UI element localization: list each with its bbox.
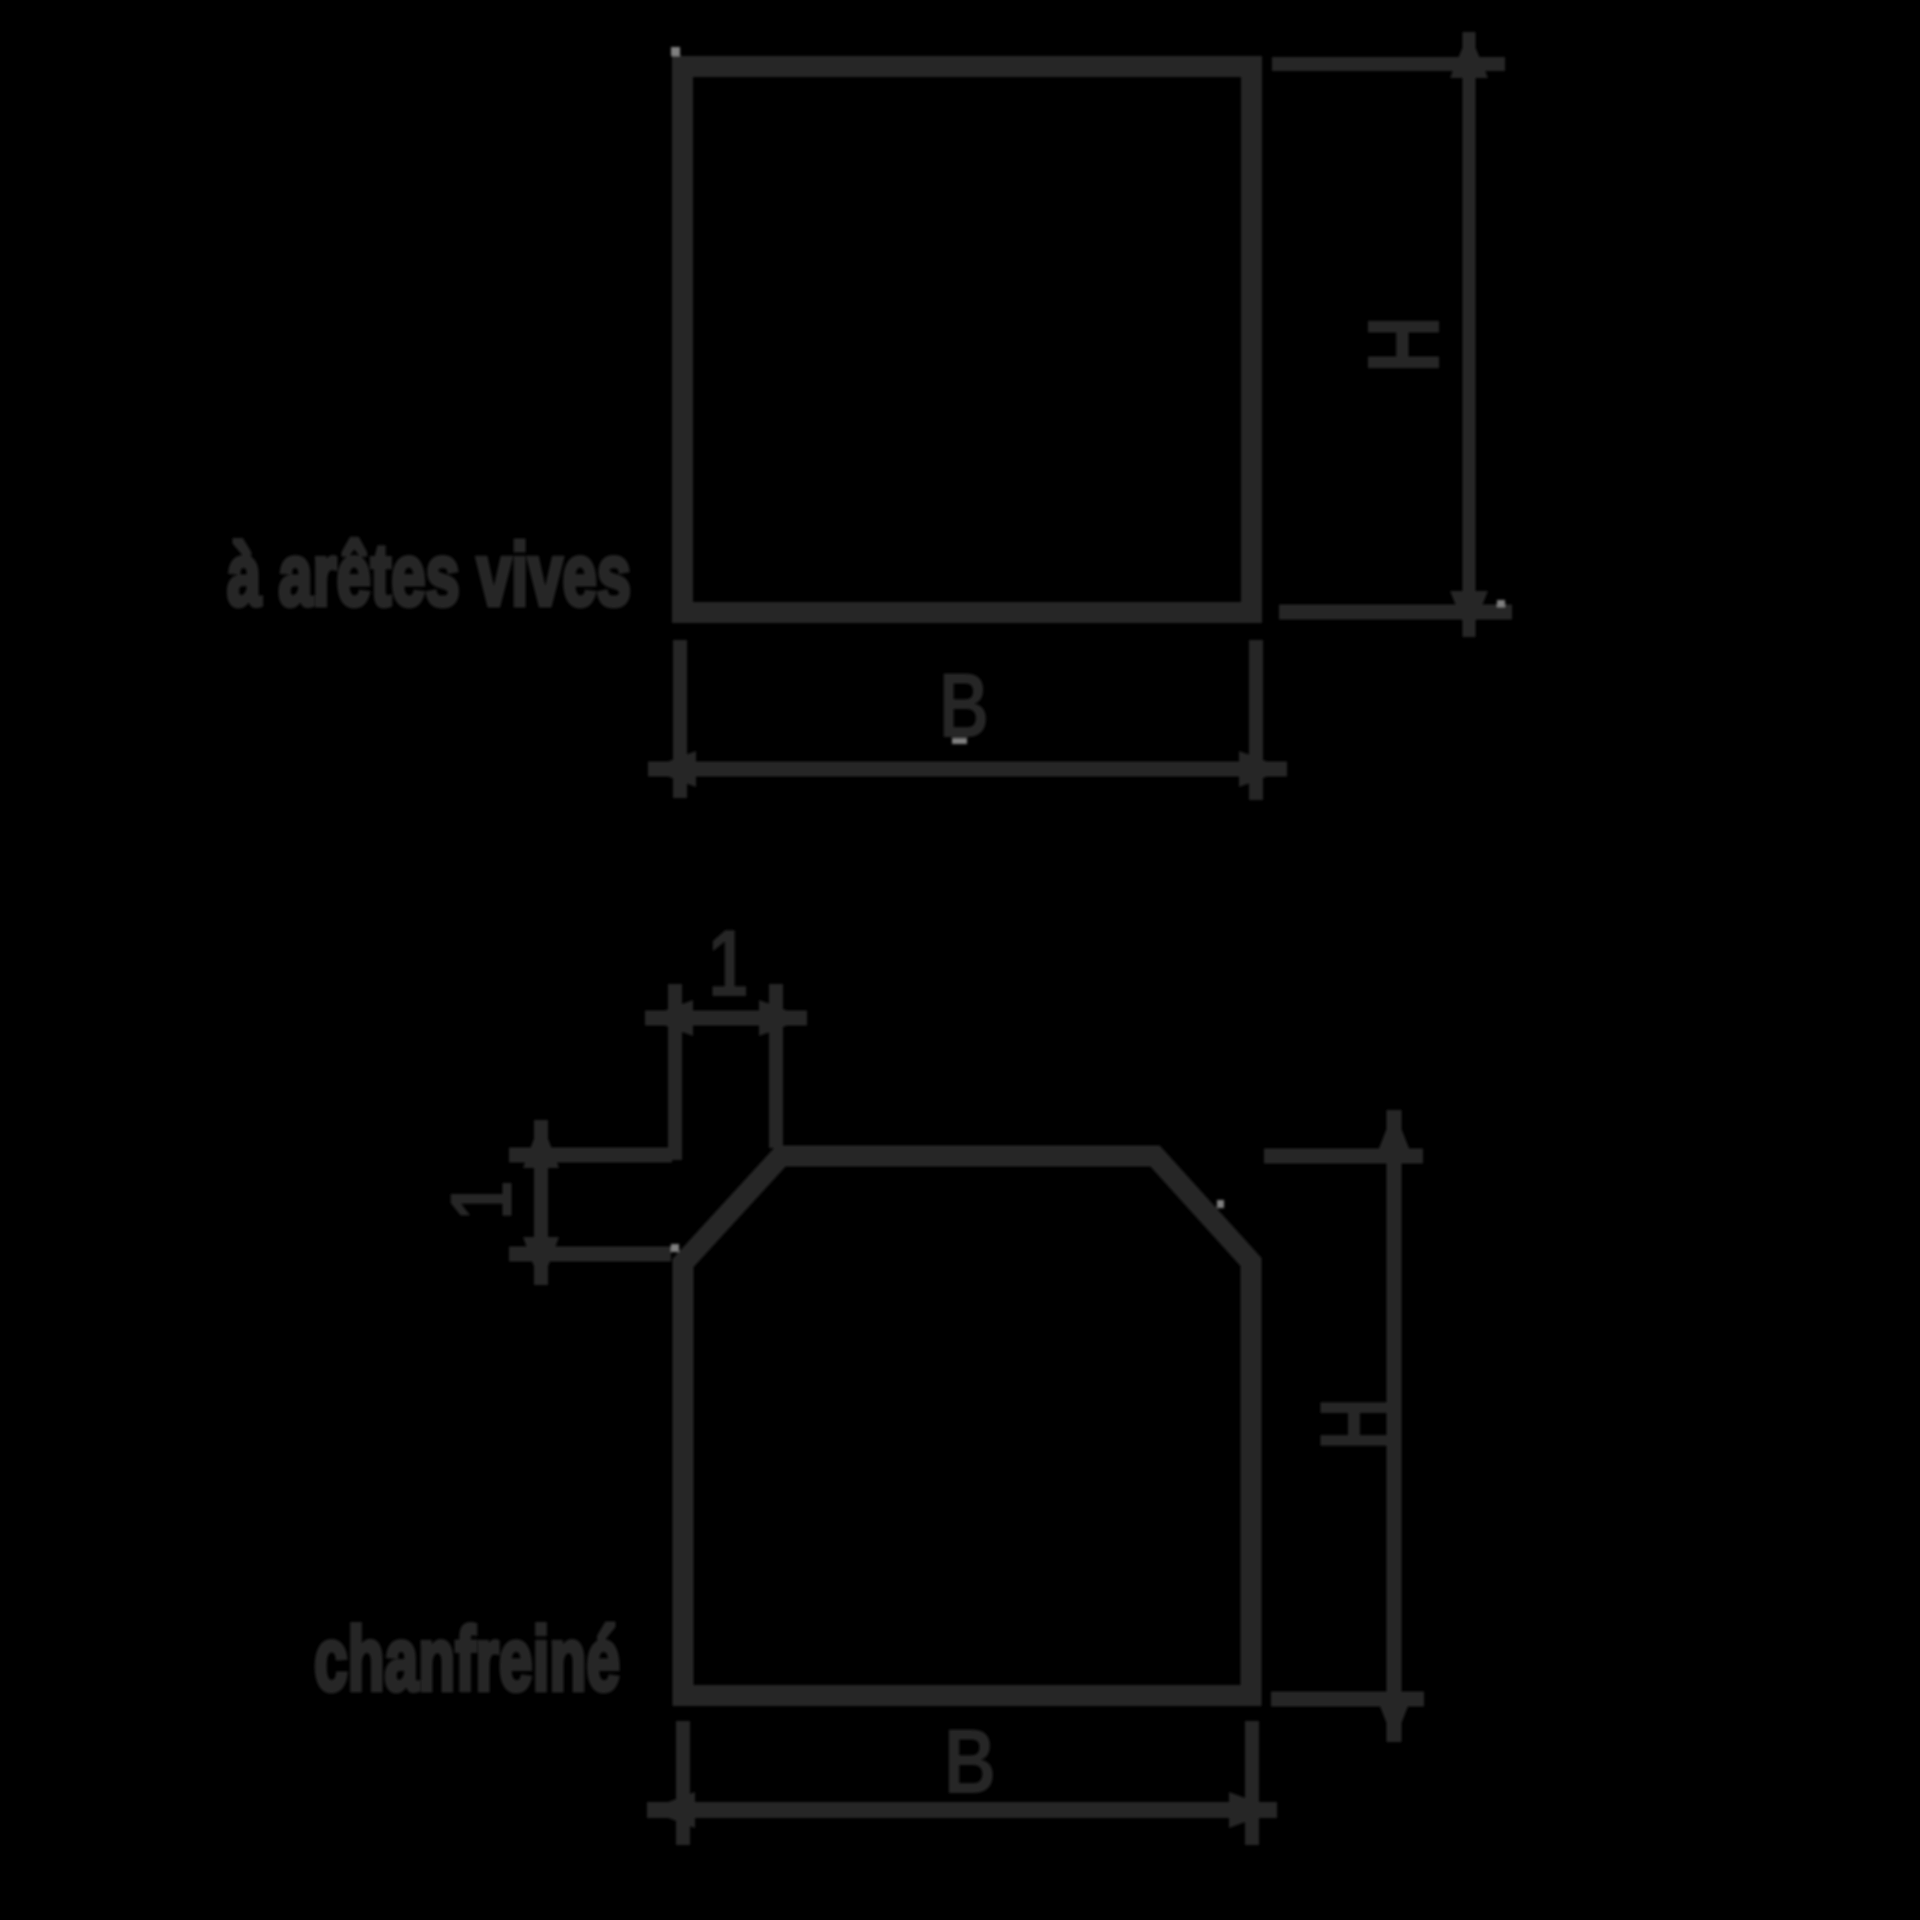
svg-text:H: H (1299, 1397, 1412, 1450)
svg-text:à arêtes vives: à arêtes vives (227, 525, 631, 624)
svg-text:chanfreiné: chanfreiné (314, 1610, 620, 1710)
svg-text:B: B (944, 1710, 996, 1813)
svg-text:1: 1 (432, 1181, 530, 1220)
svg-text:1: 1 (708, 909, 748, 1016)
svg-text:H: H (1346, 315, 1462, 373)
